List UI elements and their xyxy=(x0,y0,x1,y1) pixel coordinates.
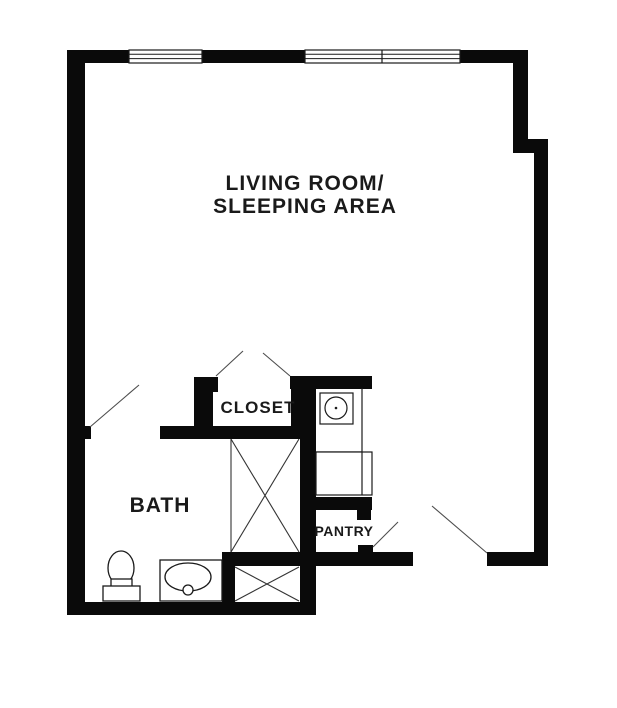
utility-x-small-icon xyxy=(235,567,299,601)
wall-left xyxy=(67,50,85,615)
sink-icon xyxy=(160,560,222,601)
toilet-icon xyxy=(103,551,140,601)
wall-bath-door-stub xyxy=(85,426,91,439)
closet-door-right-line xyxy=(263,353,290,376)
wall-bath-top xyxy=(160,426,305,439)
wall-closet-left-stub xyxy=(194,377,218,392)
utility-x-large-icon xyxy=(231,439,299,552)
bath-label: BATH xyxy=(120,494,200,517)
closet-label: CLOSET xyxy=(213,399,303,417)
wall-bottom xyxy=(67,602,315,615)
washer-dryer-icon xyxy=(316,388,362,452)
bath-door-line xyxy=(90,385,139,427)
pantry-door-line xyxy=(373,522,398,547)
living-room-label-line1: LIVING ROOM/ xyxy=(165,172,445,195)
entry-door-line xyxy=(432,506,487,553)
wall-right-upper xyxy=(513,50,528,153)
wall-pantry-door-jamb xyxy=(358,545,373,553)
wall-bottom-right xyxy=(487,552,548,566)
living-room-label: LIVING ROOM/ SLEEPING AREA xyxy=(165,172,445,218)
wall-pantry-mid-stub xyxy=(357,510,371,520)
window-double-icon xyxy=(305,50,460,63)
floor-plan-drawing xyxy=(0,0,617,708)
floor-plan: LIVING ROOM/ SLEEPING AREA CLOSET BATH P… xyxy=(0,0,617,708)
wall-pantry-mid xyxy=(300,497,372,510)
window-single-icon xyxy=(129,50,202,63)
wall-lower-left xyxy=(222,552,235,615)
wall-lower-horizontal xyxy=(222,552,413,566)
living-room-label-line2: SLEEPING AREA xyxy=(165,195,445,218)
door-swings xyxy=(90,351,487,553)
pantry-label: PANTRY xyxy=(314,524,374,539)
closet-door-left-line xyxy=(216,351,243,376)
walls xyxy=(67,50,548,615)
wall-right-lower xyxy=(534,139,548,566)
counter-appliance-icon xyxy=(316,452,372,495)
